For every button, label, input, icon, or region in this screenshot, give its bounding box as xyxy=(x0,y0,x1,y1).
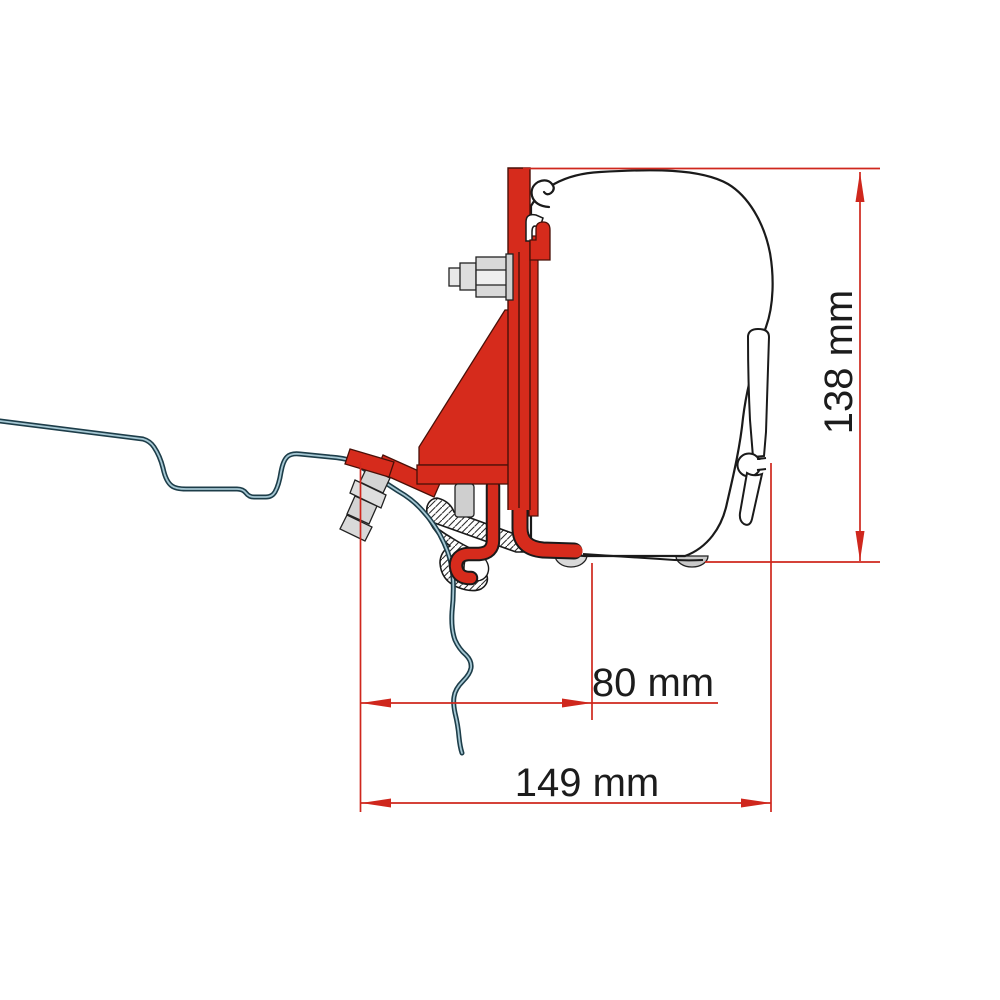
awning-case xyxy=(531,170,773,567)
case-bottom-roller xyxy=(676,556,708,567)
mounting-bolt xyxy=(449,254,513,300)
front-panel-upper xyxy=(748,329,769,457)
label-80mm: 80 mm xyxy=(592,661,714,705)
gusset-triangle xyxy=(419,310,512,465)
arrow-149-left xyxy=(361,799,391,808)
label-149mm: 149 mm xyxy=(515,761,660,805)
arrow-80-right xyxy=(562,699,592,708)
bolt-tip xyxy=(449,268,461,286)
washer xyxy=(506,254,513,300)
spacer-block xyxy=(455,484,474,517)
awning-adapter-diagram: 80 mm 149 mm 138 mm xyxy=(0,0,1000,1000)
arrow-149-right xyxy=(741,799,771,808)
label-138mm: 138 mm xyxy=(817,290,861,435)
arrow-80-left xyxy=(361,699,391,708)
bolt-shank xyxy=(460,263,476,290)
front-panel-lower xyxy=(740,473,762,525)
hex-nut-facet xyxy=(477,270,506,285)
clamp-knob xyxy=(340,467,390,541)
diagram-canvas: 80 mm 149 mm 138 mm xyxy=(0,0,1000,1000)
arrow-138-bottom xyxy=(856,531,865,561)
awning-case-body xyxy=(531,170,773,556)
base-bar xyxy=(417,465,512,484)
arrow-138-top xyxy=(856,172,865,202)
